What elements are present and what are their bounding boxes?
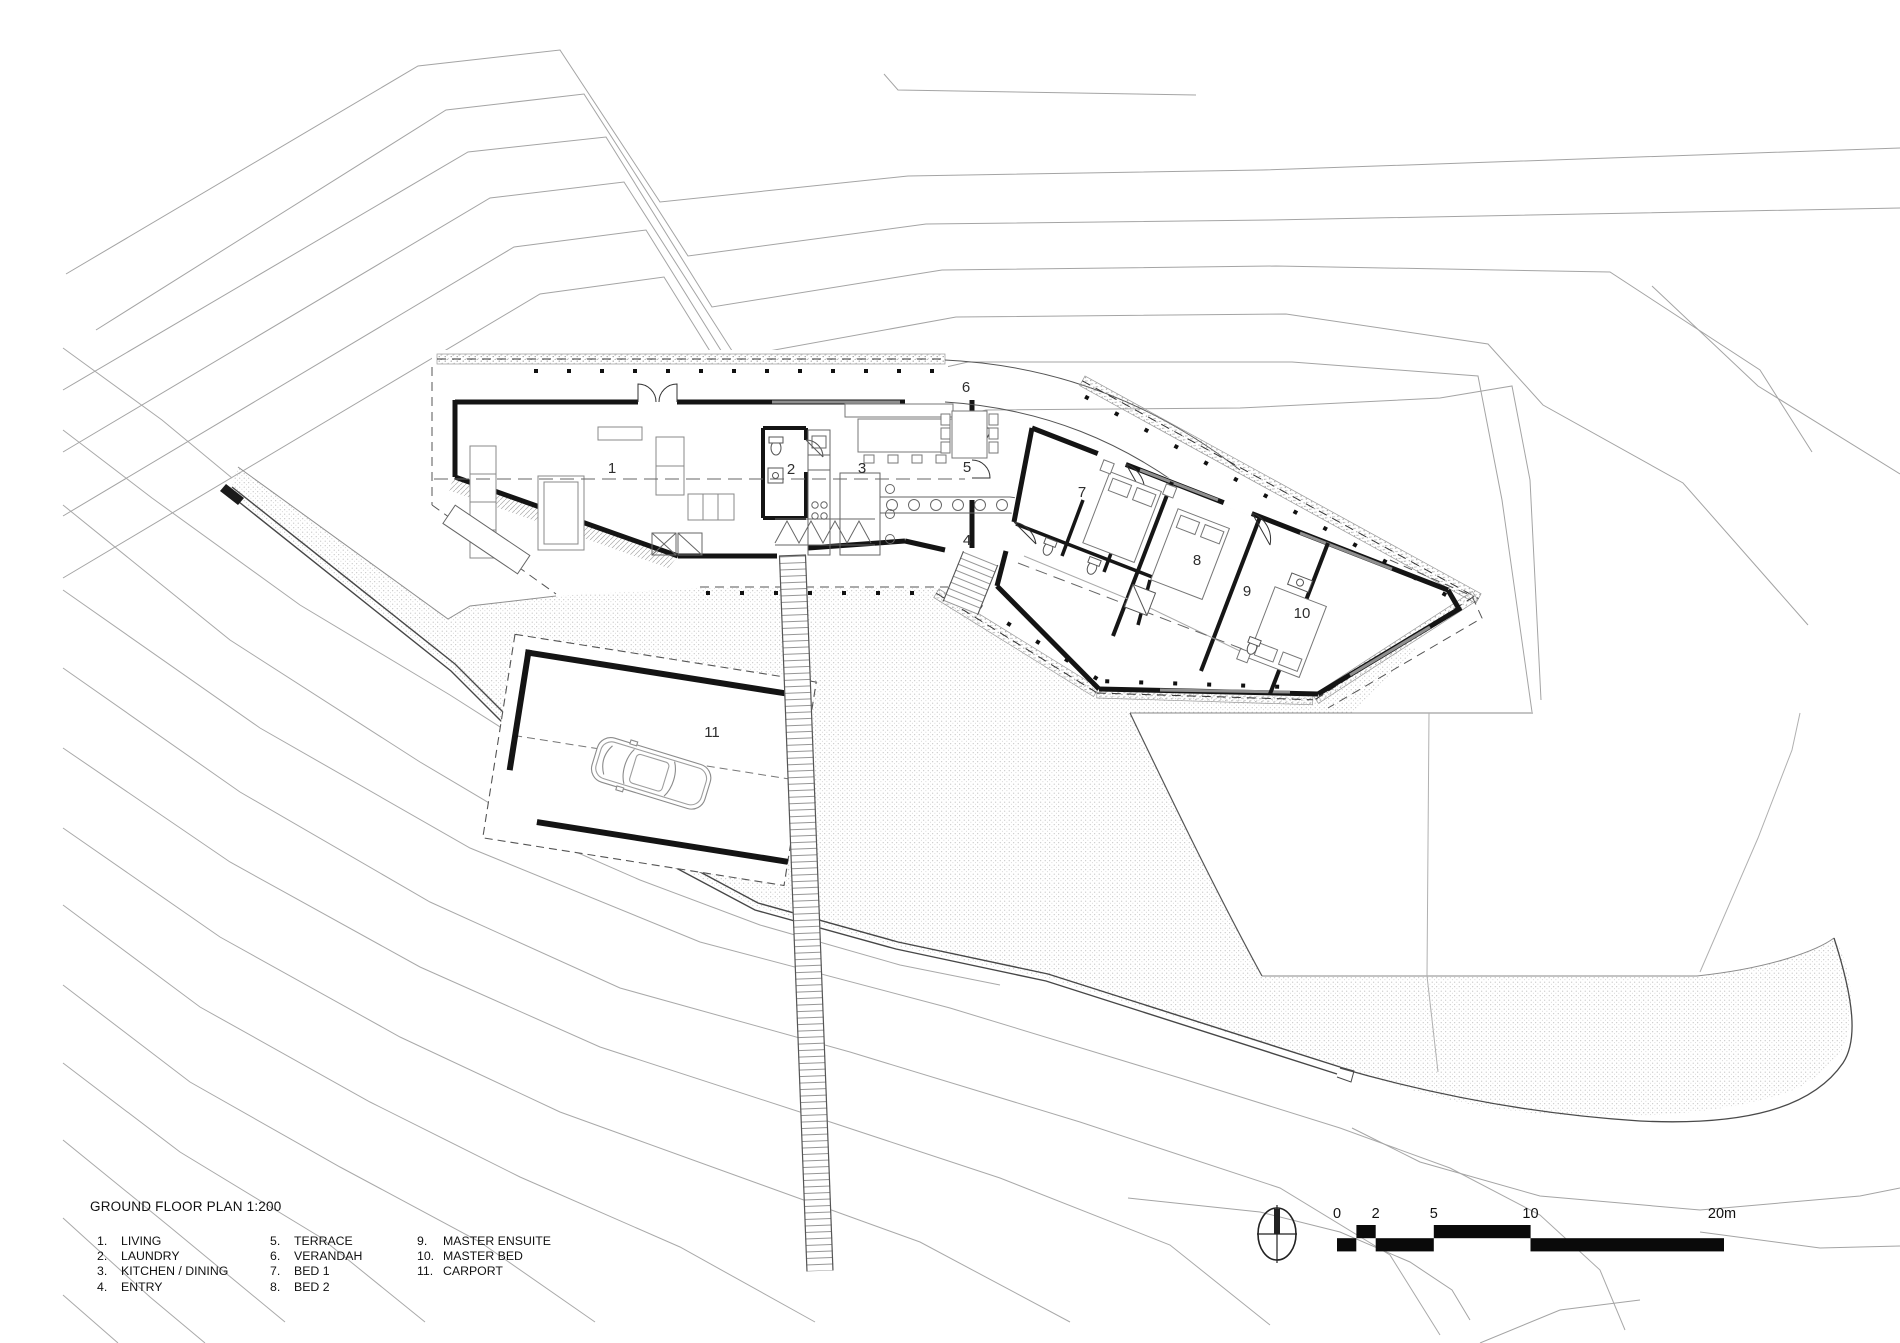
room-number-label: 4: [963, 532, 971, 549]
floor-plan-drawing: 1 2 3 4 5 6 7 8 9 10 11 0 2 5 10 20m: [0, 0, 1900, 1343]
room-number-label: 6: [962, 379, 970, 396]
drawing-title: GROUND FLOOR PLAN 1:200: [90, 1199, 281, 1214]
legend-item: 8.BED 2: [270, 1280, 362, 1295]
room-number-label: 8: [1193, 552, 1201, 569]
terrace-table: [941, 411, 998, 458]
scale-tick-label: 0: [1333, 1206, 1341, 1222]
legend-item: 5.TERRACE: [270, 1234, 362, 1249]
north-arrow-icon: [1257, 1205, 1297, 1263]
legend-column-2: 5.TERRACE 6.VERANDAH 7.BED 1 8.BED 2: [270, 1234, 362, 1295]
legend-item: 6.VERANDAH: [270, 1249, 362, 1264]
legend-item: 4.ENTRY: [97, 1280, 228, 1295]
room-number-label: 5: [963, 459, 971, 476]
legend-item: 2.LAUNDRY: [97, 1249, 228, 1264]
room-number-label: 10: [1294, 605, 1311, 622]
room-number-label: 3: [858, 460, 866, 477]
left-wing: [432, 350, 990, 617]
scale-bar: 0 2 5 10 20m: [1333, 1206, 1736, 1251]
left-wing-floor: [432, 350, 948, 617]
room-number-label: 11: [704, 724, 720, 741]
legend-item: 3.KITCHEN / DINING: [97, 1264, 228, 1279]
scale-tick-label: 2: [1372, 1206, 1380, 1222]
scale-tick-label: 10: [1522, 1206, 1538, 1222]
legend-column-3: 9.MASTER ENSUITE 10.MASTER BED 11.CARPOR…: [417, 1234, 551, 1280]
legend-item: 7.BED 1: [270, 1264, 362, 1279]
room-number-label: 2: [787, 461, 795, 478]
room-number-label: 9: [1243, 583, 1251, 600]
legend-column-1: 1.LIVING 2.LAUNDRY 3.KITCHEN / DINING 4.…: [97, 1234, 228, 1295]
room-number-label: 1: [608, 460, 616, 477]
scale-tick-label: 5: [1430, 1206, 1438, 1222]
legend-item: 9.MASTER ENSUITE: [417, 1234, 551, 1249]
legend-item: 10.MASTER BED: [417, 1249, 551, 1264]
room-number-label: 7: [1078, 484, 1086, 501]
legend-item: 11.CARPORT: [417, 1264, 551, 1279]
legend-item: 1.LIVING: [97, 1234, 228, 1249]
scale-tick-label: 20m: [1708, 1206, 1736, 1222]
